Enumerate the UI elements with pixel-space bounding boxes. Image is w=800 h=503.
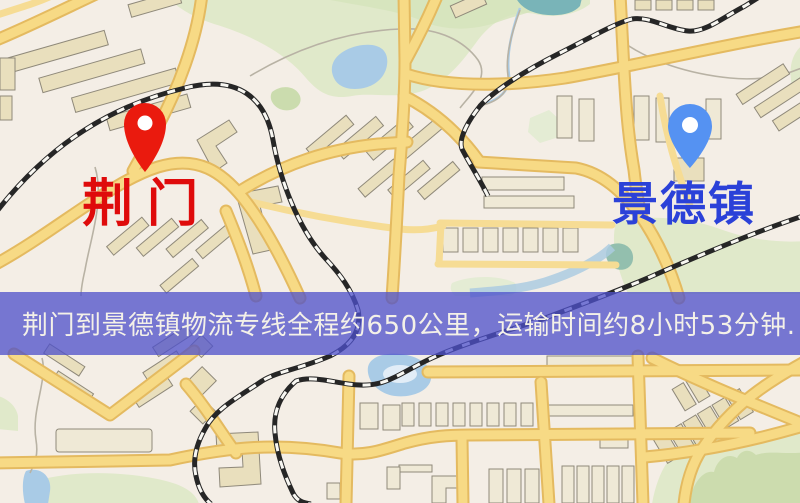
destination-city-label: 景德镇	[612, 181, 756, 227]
route-info-banner: 荆门到景德镇物流专线全程约650公里，运输时间约8小时53分钟.	[0, 292, 800, 355]
map-image: 荆门 景德镇 荆门到景德镇物流专线全程约650公里，运输时间约8小时53分钟.	[0, 0, 800, 503]
origin-city-label: 荆门	[82, 179, 212, 230]
route-info-text: 荆门到景德镇物流专线全程约650公里，运输时间约8小时53分钟.	[22, 305, 796, 342]
map-canvas[interactable]	[0, 0, 800, 503]
